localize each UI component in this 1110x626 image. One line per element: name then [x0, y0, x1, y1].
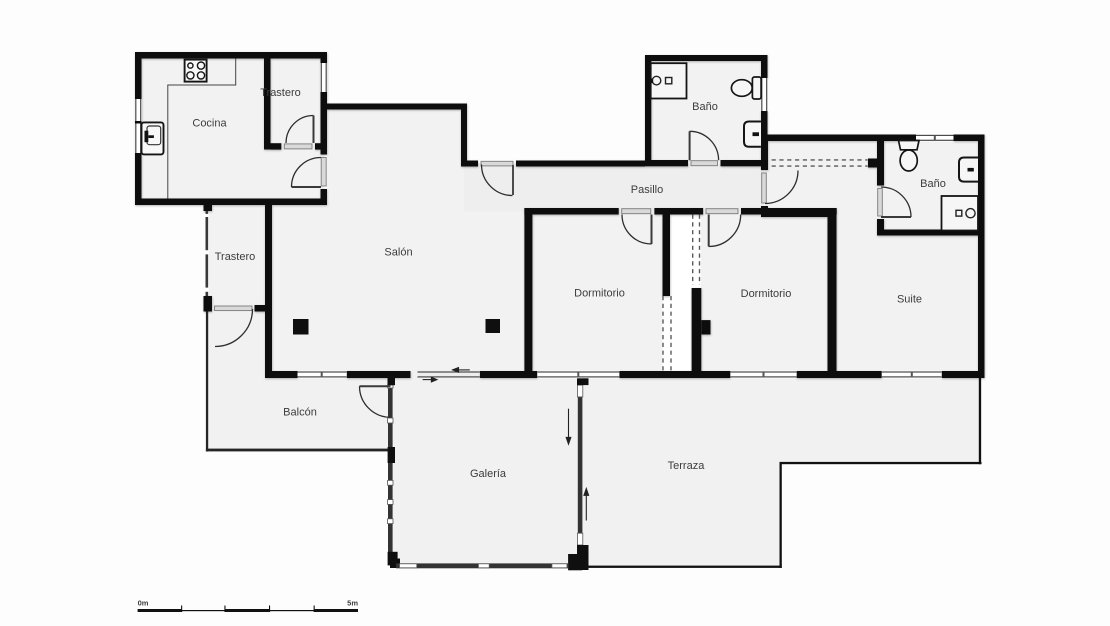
svg-text:Trastero: Trastero [215, 251, 256, 263]
svg-text:Baño: Baño [920, 178, 946, 190]
svg-text:Suite: Suite [897, 293, 922, 305]
svg-text:Pasillo: Pasillo [631, 184, 663, 196]
svg-text:Balcón: Balcón [283, 406, 317, 418]
svg-text:Cocina: Cocina [192, 117, 227, 129]
svg-text:5m: 5m [347, 599, 358, 608]
svg-text:Trastero: Trastero [260, 87, 301, 99]
svg-text:Dormitorio: Dormitorio [574, 287, 625, 299]
svg-text:Baño: Baño [692, 101, 718, 113]
svg-text:Salón: Salón [384, 246, 412, 258]
svg-text:Dormitorio: Dormitorio [741, 288, 792, 300]
svg-text:Galería: Galería [470, 468, 507, 480]
svg-text:0m: 0m [138, 599, 149, 608]
svg-text:Terraza: Terraza [668, 460, 706, 472]
